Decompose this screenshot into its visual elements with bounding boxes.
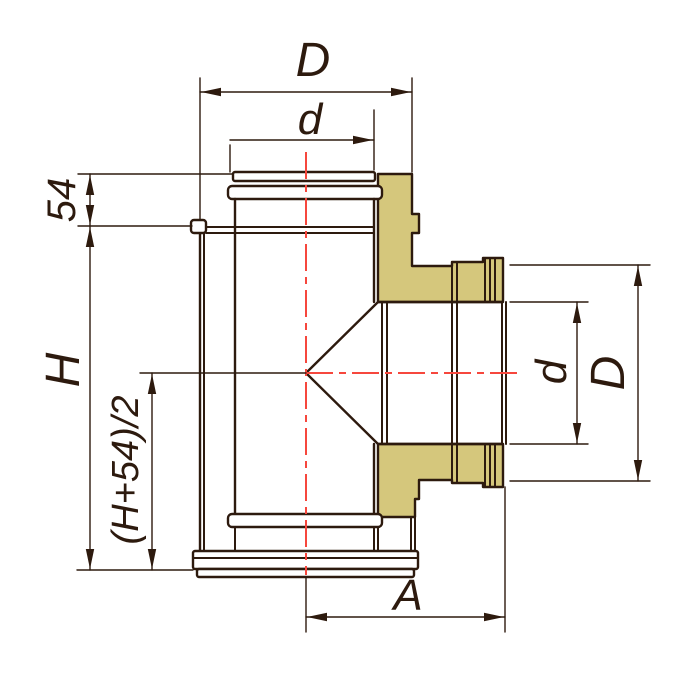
extension-lines (78, 174, 233, 226)
arrowhead-up (573, 303, 581, 323)
arrowhead-down (148, 549, 156, 569)
dim-branch-length-label: A (390, 571, 422, 620)
dim-branch-axis-label: (H+54)/2 (105, 396, 147, 545)
outer-shell-roll-left (191, 220, 206, 233)
dim-top-outer-label: D (296, 34, 331, 87)
arrowhead-left (201, 88, 221, 96)
arrowhead-right (391, 88, 411, 96)
arrowhead-left (307, 613, 327, 621)
top-lip (233, 172, 375, 181)
arrowhead-up (86, 175, 94, 195)
dim-height-label: H (37, 352, 90, 387)
insulation-section (378, 174, 503, 517)
arrowhead-up (634, 266, 642, 286)
dim-side-inner-label: d (527, 358, 576, 384)
saddle-line-lower (306, 373, 378, 444)
dim-top-inner-label: d (298, 95, 324, 144)
drawing-svg: D d 54 H (H+54)/2 A (0, 0, 700, 700)
dimension-top-inner: d (230, 95, 374, 172)
dimension-branch-axis: (H+54)/2 (105, 373, 306, 570)
tee-fitting-technical-drawing: D d 54 H (H+54)/2 A (0, 0, 700, 700)
arrowhead-right (353, 136, 373, 144)
dim-spigot-label: 54 (40, 178, 84, 223)
arrowhead-up (148, 374, 156, 394)
arrowhead-down (86, 549, 94, 569)
dimension-spigot: 54 (40, 174, 233, 226)
arrowhead-up (86, 227, 94, 247)
arrowhead-down (573, 423, 581, 443)
arrowhead-right (484, 613, 504, 621)
dimension-side-inner: d (510, 302, 588, 444)
outer-shell-top-seam (206, 227, 374, 233)
arrowhead-down (634, 460, 642, 480)
saddle-line-upper (306, 302, 378, 373)
dim-side-outer-label: D (582, 356, 635, 391)
arrowhead-down (86, 205, 94, 225)
